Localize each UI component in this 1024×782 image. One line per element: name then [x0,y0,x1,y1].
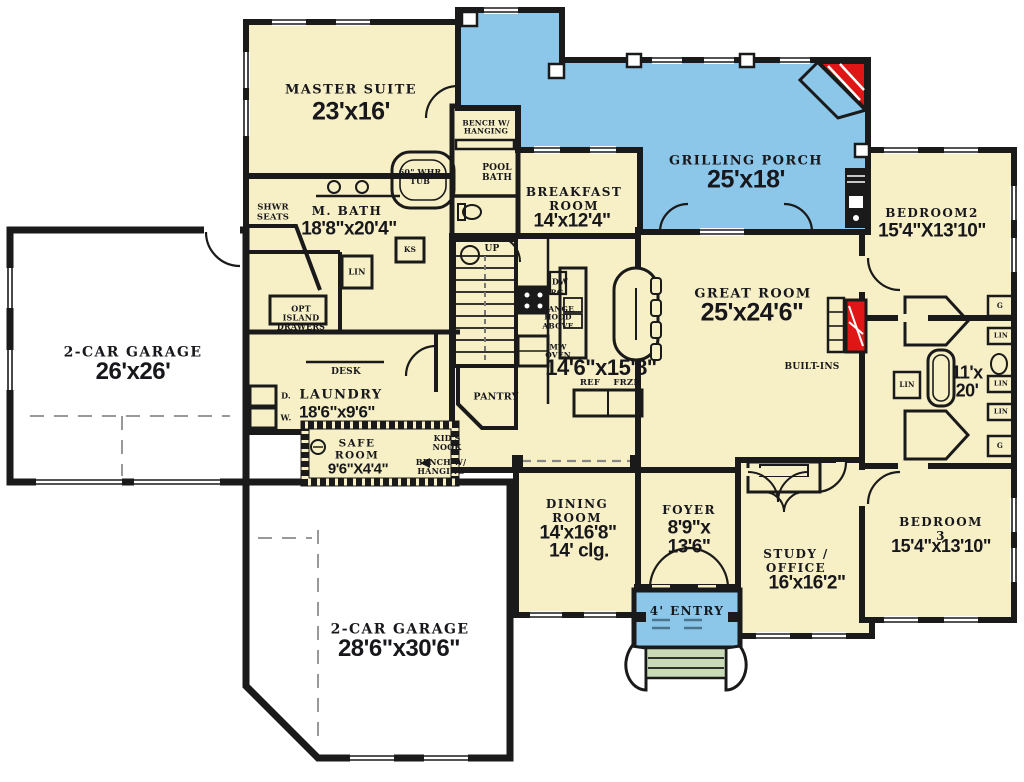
column [512,455,523,468]
grill-appliance [849,196,863,208]
garage1-floor [10,230,246,482]
dining-floor [516,470,640,615]
kitchen-floor [452,236,640,470]
entry-steps [646,648,726,678]
jj-door-gap [898,314,928,322]
study-floor [738,460,872,636]
porch-column [549,64,564,78]
breakfast-floor [518,150,640,244]
porch-column [740,54,754,67]
chair [651,344,661,360]
garage2-floor [246,482,510,758]
bedroom2-floor [862,150,1014,318]
porch-column [855,144,869,157]
entry-wing-left [626,646,646,690]
chair [651,300,661,316]
jj-door-gap [898,462,928,470]
bedroom3-floor [862,466,1014,620]
floor-plan: MASTER SUITE 23'x16' M. BATH 18'8"x20'4"… [0,0,1024,782]
bath-closet-floor [246,176,460,432]
porch-column [462,12,477,26]
column [630,455,641,468]
chair [651,322,661,338]
range [518,286,548,314]
garage1-door-gap [204,226,240,235]
entry-area [626,584,746,690]
porch-column [627,54,641,67]
floor-plan-drawing [0,0,1024,782]
chair [651,278,661,294]
entry-wing-right [726,646,746,690]
safe-room [305,425,455,482]
